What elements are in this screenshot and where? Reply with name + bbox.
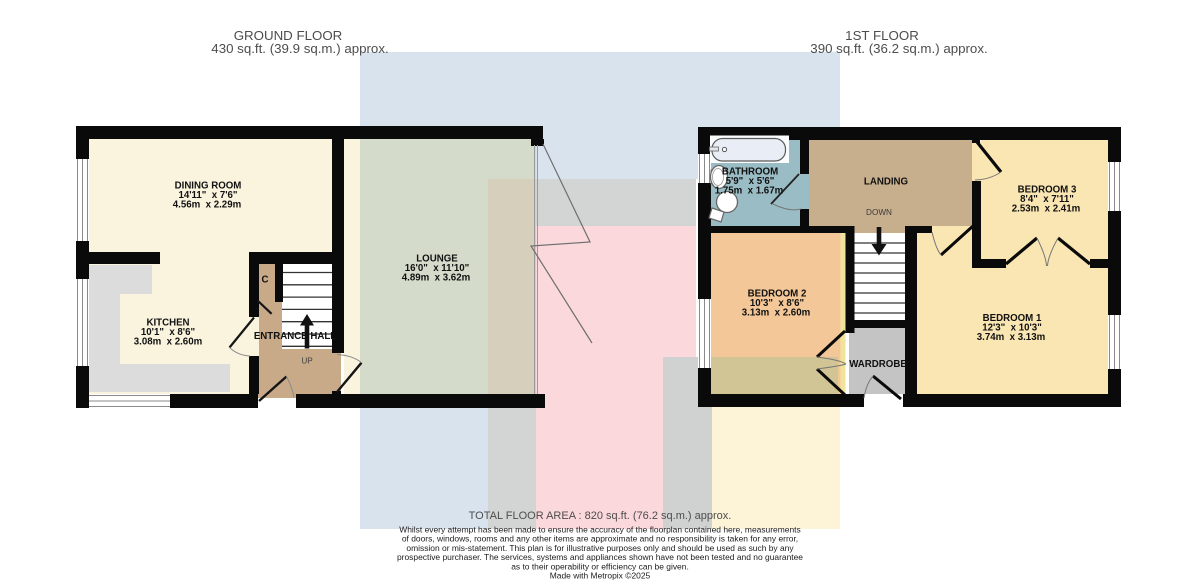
svg-text:LANDING: LANDING (864, 177, 908, 188)
svg-text:4.56m x 2.29m: 4.56m x 2.29m (173, 200, 242, 211)
svg-text:Made with Metropix ©2025: Made with Metropix ©2025 (550, 571, 651, 581)
svg-text:3.13m x 2.60m: 3.13m x 2.60m (742, 308, 811, 319)
svg-text:3.74m x 3.13m: 3.74m x 3.13m (977, 332, 1046, 343)
svg-text:1.75m x 1.67m: 1.75m x 1.67m (715, 186, 784, 197)
svg-text:4.89m x 3.62m: 4.89m x 3.62m (402, 273, 471, 284)
svg-text:TOTAL FLOOR AREA : 820 sq.ft.: TOTAL FLOOR AREA : 820 sq.ft. (76.2 sq.m… (469, 510, 732, 522)
svg-text:2.53m x 2.41m: 2.53m x 2.41m (1012, 204, 1081, 215)
svg-text:UP: UP (301, 357, 313, 366)
svg-text:3.08m x 2.60m: 3.08m x 2.60m (134, 337, 203, 348)
svg-text:430 sq.ft. (39.9 sq.m.) approx: 430 sq.ft. (39.9 sq.m.) approx. (211, 41, 388, 56)
svg-text:ENTRANCE HALL: ENTRANCE HALL (254, 331, 336, 342)
svg-text:DOWN: DOWN (866, 208, 892, 217)
svg-text:C: C (262, 275, 269, 286)
svg-text:WARDROBE: WARDROBE (849, 359, 907, 370)
svg-text:390 sq.ft. (36.2 sq.m.) approx: 390 sq.ft. (36.2 sq.m.) approx. (810, 41, 987, 56)
